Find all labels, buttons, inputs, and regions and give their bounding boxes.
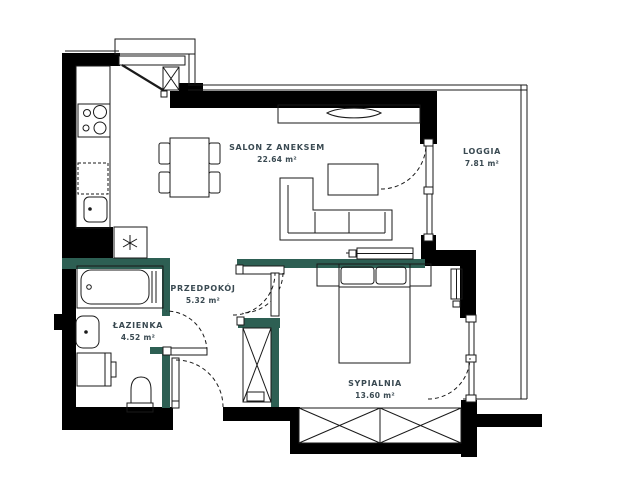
chair bbox=[159, 143, 170, 164]
stove-icon bbox=[78, 104, 110, 137]
room-label-przedpokoj: PRZEDPOKÓJ 5.32 m² bbox=[170, 283, 235, 306]
bathtub-icon bbox=[77, 266, 163, 308]
kitchen-sink-icon bbox=[84, 197, 107, 222]
bedroom-window bbox=[428, 315, 476, 402]
door-bedroom bbox=[233, 273, 279, 316]
kitchen-counter bbox=[76, 66, 110, 228]
double-bed bbox=[339, 264, 410, 363]
chair bbox=[209, 172, 220, 193]
tv-icon bbox=[327, 108, 381, 118]
coffee-table bbox=[328, 164, 378, 195]
balcony-door bbox=[381, 139, 433, 241]
dining-table bbox=[159, 138, 220, 197]
pillow bbox=[376, 267, 406, 284]
chair bbox=[159, 172, 170, 193]
window bbox=[427, 194, 432, 238]
room-label-loggia: LOGGIA 7.81 m² bbox=[463, 146, 501, 169]
room-label-lazienka: ŁAZIENKA 4.52 m² bbox=[113, 320, 163, 343]
dishwasher-icon bbox=[78, 163, 108, 194]
door-leaf bbox=[122, 65, 163, 90]
washing-machine-icon bbox=[77, 353, 116, 386]
room-label-sypialnia: SYPIALNIA 13.60 m² bbox=[348, 378, 402, 401]
door-hall-bottom bbox=[172, 358, 223, 408]
wardrobe-icon bbox=[237, 317, 271, 402]
vent-shaft-icon bbox=[114, 227, 147, 258]
radiator-icon bbox=[346, 248, 413, 259]
toilet-icon bbox=[127, 377, 153, 412]
kitchen bbox=[76, 66, 110, 228]
room-label-salon: SALON Z ANEKSEM 22.64 m² bbox=[229, 142, 325, 165]
door-bathroom bbox=[163, 311, 207, 355]
washbasin-icon bbox=[76, 316, 99, 348]
floor-plan-drawing bbox=[0, 0, 640, 480]
south-window-bay bbox=[299, 408, 461, 443]
chair bbox=[209, 143, 220, 164]
floor-plan: SALON Z ANEKSEM 22.64 m² LOGGIA 7.81 m² … bbox=[0, 0, 640, 480]
pillow bbox=[341, 267, 374, 284]
sofa bbox=[280, 178, 392, 240]
